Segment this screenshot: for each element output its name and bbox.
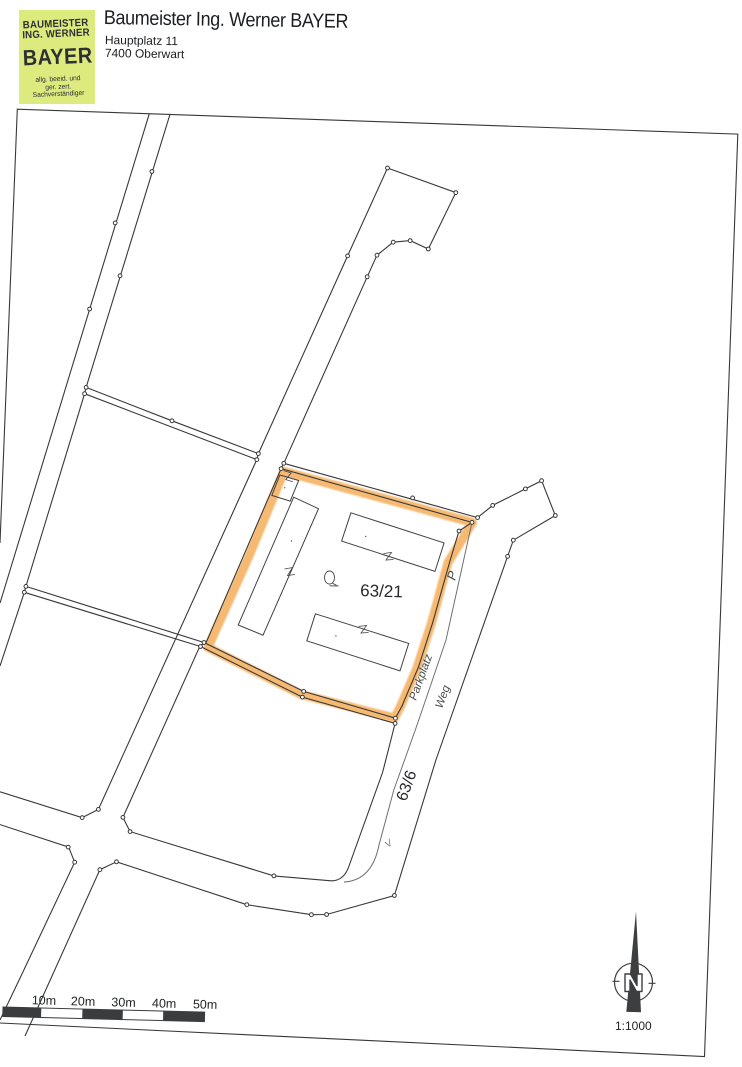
svg-text:50m: 50m [193,997,218,1012]
svg-text:V: V [383,837,396,851]
svg-text:40m: 40m [152,996,177,1011]
svg-text:20m: 20m [71,994,96,1009]
svg-text:63/6: 63/6 [394,768,421,803]
svg-text:30m: 30m [111,995,136,1010]
svg-text:Weg: Weg [434,683,453,710]
svg-text:10m: 10m [32,993,57,1008]
svg-text:1:1000: 1:1000 [615,1019,652,1033]
svg-text:63/21: 63/21 [360,581,403,601]
